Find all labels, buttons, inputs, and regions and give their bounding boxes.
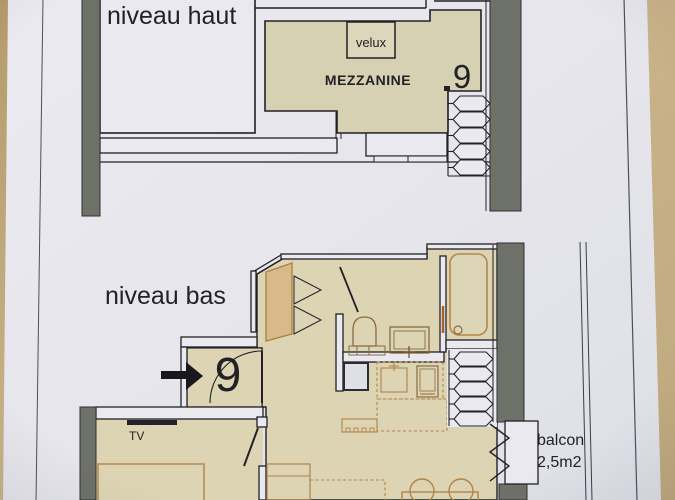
kitchen-left-wall xyxy=(259,466,266,500)
mezzanine-label: MEZZANINE xyxy=(325,72,411,88)
balcony-area-label: 2,5m2 xyxy=(537,454,582,471)
bedroom-left-wall xyxy=(80,407,96,500)
bedroom-door-jamb xyxy=(257,417,267,427)
lower-level-title: niveau bas xyxy=(105,282,226,310)
shower-tray xyxy=(344,363,368,390)
tv-label: TV xyxy=(129,429,144,443)
upper-level-title: niveau haut xyxy=(107,2,236,30)
stair-landing xyxy=(366,133,447,156)
lower-wall-right xyxy=(497,243,524,422)
lower-top-wall xyxy=(281,254,427,259)
bathroom-left-wall xyxy=(336,314,343,391)
bedroom-top-wall xyxy=(96,407,263,419)
balcony-threshold xyxy=(505,421,538,484)
lower-top-wall-step xyxy=(427,244,497,249)
velux-label: velux xyxy=(356,35,387,50)
shower-room xyxy=(443,254,487,335)
floor-plan-photo: niveau haut velux MEZZANINE 9 xyxy=(0,0,675,500)
hall-side-wall xyxy=(251,271,256,332)
lower-wall-right-bottom xyxy=(499,484,527,500)
stair-tread-strip xyxy=(374,156,447,162)
bathroom-right-wall xyxy=(440,256,446,352)
staircase-lower xyxy=(447,349,497,427)
upper-unit-number: 9 xyxy=(453,58,471,95)
lower-unit-number: 9 xyxy=(215,349,242,402)
upper-wall-right xyxy=(490,0,521,211)
tv-unit xyxy=(127,420,177,425)
entry-top-wall xyxy=(181,337,257,347)
balcony-label: balcon xyxy=(537,432,584,449)
bedroom-floor xyxy=(96,419,263,500)
upper-wall-left xyxy=(82,0,100,216)
upper-corridor-band xyxy=(100,138,337,153)
shower-room-bottom-wall xyxy=(446,340,497,349)
